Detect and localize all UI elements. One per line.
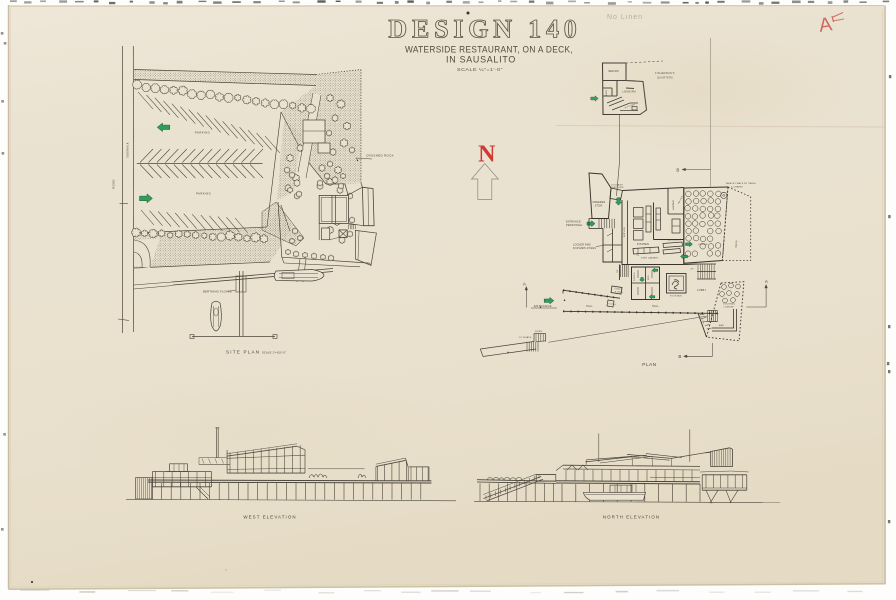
svg-text:KITCHEN: KITCHEN (637, 243, 649, 246)
svg-text:SCALE 1″=100′-0″: SCALE 1″=100′-0″ (262, 351, 286, 355)
svg-text:PARKING: PARKING (196, 192, 211, 196)
svg-text:PERSONNEL: PERSONNEL (566, 224, 583, 227)
svg-text:TO BOATS: TO BOATS (519, 336, 532, 339)
svg-text:STOR.: STOR. (595, 206, 604, 208)
svg-text:UP: UP (617, 269, 619, 273)
svg-text:IN SAUSALITO: IN SAUSALITO (446, 55, 516, 66)
svg-text:MEN: MEN (648, 275, 650, 280)
svg-text:PLAN: PLAN (642, 362, 656, 367)
svg-text:COCKTAIL: COCKTAIL (723, 303, 736, 306)
svg-text:LOUNGE: LOUNGE (724, 307, 735, 309)
svg-text:LARDER: LARDER (672, 200, 675, 210)
svg-text:A: A (765, 279, 768, 284)
svg-text:WOMEN: WOMEN (634, 272, 636, 281)
svg-text:BRACE TRAYS BY TABLE: BRACE TRAYS BY TABLE (726, 182, 756, 185)
svg-text:DOWN: DOWN (535, 331, 543, 333)
svg-text:LOBBY: LOBBY (697, 289, 707, 292)
svg-text:B: B (678, 354, 681, 359)
svg-text:FOR EMPLOYEES: FOR EMPLOYEES (573, 247, 596, 250)
svg-text:SITE PLAN: SITE PLAN (226, 350, 260, 355)
svg-text:ASSEMBLY: ASSEMBLY (668, 239, 681, 242)
svg-text:WEST ELEVATION: WEST ELEVATION (243, 514, 296, 519)
svg-text:BERTHING FLOATS: BERTHING FLOATS (203, 290, 232, 294)
svg-text:FREEZER: FREEZER (593, 202, 606, 204)
svg-text:ROAD: ROAD (112, 179, 116, 189)
svg-text:DISH CABINET: DISH CABINET (641, 257, 659, 260)
svg-text:BAR: BAR (719, 324, 724, 327)
svg-text:HALL: HALL (652, 305, 659, 308)
svg-text:ENTRANCE: ENTRANCE (534, 304, 552, 308)
svg-text:DESIGN 140: DESIGN 140 (388, 15, 581, 44)
svg-text:B: B (676, 168, 679, 173)
svg-text:DINING: DINING (698, 244, 707, 246)
svg-text:SIDEWALK: SIDEWALK (126, 142, 130, 158)
svg-text:A: A (523, 281, 526, 286)
svg-text:N: N (478, 142, 496, 168)
svg-text:HALL: HALL (586, 305, 593, 308)
svg-text:UP: UP (690, 269, 694, 271)
svg-text:CRUSHED ROCK: CRUSHED ROCK (366, 154, 394, 158)
svg-text:NORTH ELEVATION: NORTH ELEVATION (603, 514, 660, 519)
svg-text:FOUNTAIN: FOUNTAIN (670, 295, 682, 298)
svg-text:No Linen: No Linen (607, 14, 643, 21)
svg-text:PLATFORM: PLATFORM (610, 186, 623, 189)
svg-text:SCALE ¼″=1′-0″: SCALE ¼″=1′-0″ (457, 67, 503, 72)
svg-text:PARKING: PARKING (195, 131, 210, 135)
svg-text:SERVICE: SERVICE (624, 226, 626, 237)
svg-text:LUGGAGE: LUGGAGE (611, 184, 623, 187)
svg-text:& CHAIRS: & CHAIRS (731, 186, 743, 189)
